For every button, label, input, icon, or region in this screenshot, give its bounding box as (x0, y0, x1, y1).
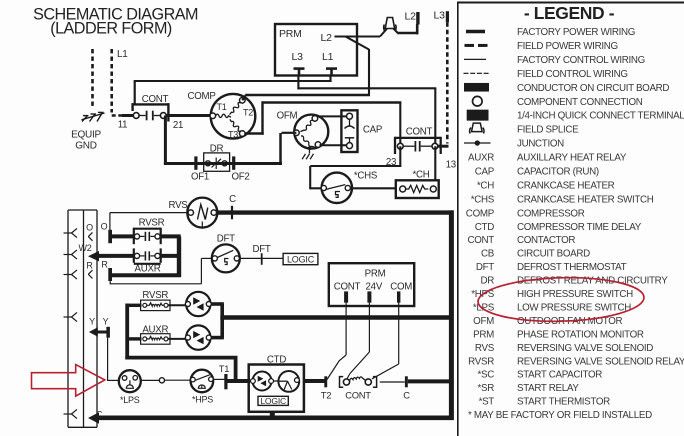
svg-text:START CAPACITOR: START CAPACITOR (517, 370, 602, 381)
svg-text:COMP: COMP (187, 91, 215, 102)
svg-text:*CH: *CH (477, 180, 494, 191)
svg-text:AUXR: AUXR (135, 264, 161, 275)
svg-text:LOGIC: LOGIC (260, 396, 286, 406)
svg-text:DEFROST RELAY AND CIRCUITRY: DEFROST RELAY AND CIRCUITRY (517, 276, 668, 287)
svg-text:REVERSING VALVE SOLENOID RELAY: REVERSING VALVE SOLENOID RELAY (517, 356, 684, 367)
svg-text:*HPS: *HPS (192, 395, 213, 405)
svg-text:R: R (101, 260, 108, 270)
svg-text:L3: L3 (434, 10, 446, 22)
svg-text:COMPRESSOR: COMPRESSOR (517, 208, 585, 219)
svg-text:CRANKCASE HEATER SWITCH: CRANKCASE HEATER SWITCH (517, 194, 654, 205)
svg-text:C: C (403, 390, 410, 401)
svg-text:FACTORY POWER WIRING: FACTORY POWER WIRING (517, 27, 635, 38)
svg-text:OFM: OFM (473, 316, 494, 327)
svg-text:PRM: PRM (279, 28, 302, 40)
svg-text:AUXR: AUXR (468, 153, 494, 164)
svg-text:24V: 24V (366, 281, 383, 292)
svg-text:*CHS: *CHS (471, 194, 495, 205)
svg-text:OF1: OF1 (191, 172, 209, 183)
svg-text:T1: T1 (217, 102, 227, 112)
svg-text:O: O (101, 222, 108, 232)
svg-text:JUNCTION: JUNCTION (517, 139, 564, 150)
svg-text:GND: GND (75, 141, 97, 152)
svg-text:PRM: PRM (473, 329, 494, 340)
svg-text:Y: Y (103, 317, 109, 327)
svg-text:START RELAY: START RELAY (517, 383, 579, 394)
svg-text:T2: T2 (321, 390, 331, 401)
svg-text:DR: DR (480, 276, 494, 287)
svg-text:C: C (229, 194, 236, 205)
svg-text:*SC: *SC (477, 370, 494, 381)
svg-text:FACTORY CONTROL WIRING: FACTORY CONTROL WIRING (517, 55, 645, 66)
svg-text:PRM: PRM (365, 269, 386, 280)
svg-text:CONT: CONT (406, 127, 433, 138)
svg-text:RVS: RVS (169, 200, 189, 211)
svg-text:1/4-INCH QUICK CONNECT TERMINA: 1/4-INCH QUICK CONNECT TERMINALS (517, 111, 684, 122)
svg-text:DFT: DFT (217, 233, 235, 244)
svg-text:CTD: CTD (475, 222, 494, 233)
svg-text:W2: W2 (79, 243, 92, 253)
svg-text:T3: T3 (228, 130, 238, 140)
svg-text:FIELD POWER WIRING: FIELD POWER WIRING (517, 41, 618, 52)
svg-text:- LEGEND -: - LEGEND - (524, 3, 615, 23)
svg-text:RVSR: RVSR (468, 356, 494, 367)
svg-text:HIGH PRESSURE SWITCH: HIGH PRESSURE SWITCH (517, 289, 633, 300)
svg-text:CONT: CONT (345, 390, 371, 401)
svg-text:*SR: *SR (477, 383, 494, 394)
svg-text:DEFROST THERMOSTAT: DEFROST THERMOSTAT (517, 262, 627, 273)
svg-text:*LPS: *LPS (120, 395, 140, 405)
svg-text:FIELD SPLICE: FIELD SPLICE (517, 125, 579, 136)
svg-text:L1: L1 (117, 49, 128, 60)
svg-text:R: R (86, 260, 93, 270)
svg-text:*CH: *CH (412, 170, 429, 181)
svg-text:CONDUCTOR ON CIRCUIT BOARD: CONDUCTOR ON CIRCUIT BOARD (517, 83, 669, 94)
svg-text:OFM: OFM (277, 111, 298, 122)
svg-text:13: 13 (446, 160, 456, 171)
svg-text:21: 21 (173, 120, 183, 131)
svg-text:CONTACTOR: CONTACTOR (517, 235, 575, 246)
svg-text:CONT: CONT (334, 281, 361, 292)
svg-text:*CHS: *CHS (354, 171, 378, 182)
svg-text:CONT: CONT (467, 235, 494, 246)
svg-text:EQUIP: EQUIP (71, 130, 101, 141)
svg-text:*LPS: *LPS (473, 302, 495, 313)
svg-text:PHASE ROTATION MONITOR: PHASE ROTATION MONITOR (517, 329, 644, 340)
svg-text:CRANKCASE HEATER: CRANKCASE HEATER (517, 180, 615, 191)
svg-text:AUXILLARY HEAT RELAY: AUXILLARY HEAT RELAY (517, 153, 627, 164)
svg-text:REVERSING VALVE SOLENOID: REVERSING VALVE SOLENOID (517, 343, 653, 354)
svg-text:RVS: RVS (475, 343, 495, 354)
svg-text:COMP: COMP (466, 208, 495, 219)
svg-text:LOGIC: LOGIC (287, 254, 315, 264)
svg-text:OF2: OF2 (231, 172, 249, 183)
svg-text:T1: T1 (219, 363, 229, 374)
svg-text:CB: CB (481, 249, 495, 260)
svg-text:COMPONENT CONNECTION: COMPONENT CONNECTION (517, 97, 643, 108)
svg-text:RVSR: RVSR (139, 217, 165, 228)
svg-text:L2: L2 (321, 32, 333, 44)
svg-text:CAPACITOR (RUN): CAPACITOR (RUN) (517, 167, 599, 178)
svg-text:*ST: *ST (479, 397, 495, 408)
svg-text:L3: L3 (292, 51, 304, 63)
svg-text:START THERMISTOR: START THERMISTOR (517, 397, 610, 408)
svg-text:CAP: CAP (475, 167, 495, 178)
svg-text:L2: L2 (405, 11, 417, 23)
svg-text:LOW PRESSURE SWITCH: LOW PRESSURE SWITCH (517, 302, 631, 313)
svg-text:(LADDER FORM): (LADDER FORM) (50, 20, 172, 38)
svg-text:DFT: DFT (476, 262, 494, 273)
svg-text:COM: COM (390, 281, 412, 292)
svg-text:11: 11 (118, 120, 128, 131)
svg-text:CAP: CAP (363, 125, 382, 136)
svg-text:T2: T2 (243, 108, 253, 118)
svg-text:CIRCUIT BOARD: CIRCUIT BOARD (517, 249, 590, 260)
svg-text:COMPRESSOR TIME DELAY: COMPRESSOR TIME DELAY (517, 222, 642, 233)
svg-text:Y: Y (89, 317, 95, 327)
svg-text:FIELD CONTROL WIRING: FIELD CONTROL WIRING (517, 69, 628, 80)
svg-text:L1: L1 (322, 51, 334, 63)
svg-text:* MAY BE FACTORY OR FIELD INST: * MAY BE FACTORY OR FIELD INSTALLED (468, 410, 652, 421)
svg-text:O: O (86, 223, 93, 233)
